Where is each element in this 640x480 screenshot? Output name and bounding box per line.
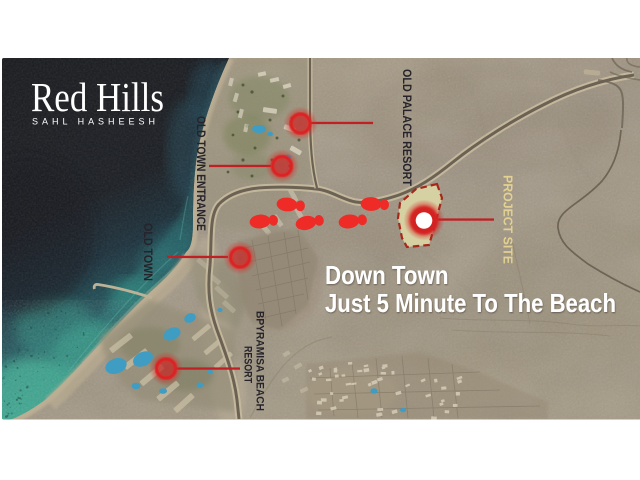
svg-text:OLD PALACE RESORT: OLD PALACE RESORT	[400, 69, 414, 187]
svg-text:Just 5 Minute To The Beach: Just 5 Minute To The Beach	[325, 288, 616, 318]
svg-text:Red Hills: Red Hills	[31, 74, 164, 120]
svg-text:BPYRAMISA BEACH: BPYRAMISA BEACH	[254, 311, 266, 411]
svg-text:PROJECT SITE: PROJECT SITE	[501, 175, 515, 264]
svg-text:OLD TOWN ENTRANCE: OLD TOWN ENTRANCE	[194, 116, 206, 231]
svg-text:RESORT: RESORT	[242, 346, 254, 383]
svg-text:OLD TOWN: OLD TOWN	[141, 223, 155, 281]
svg-text:Down Town: Down Town	[325, 260, 449, 290]
